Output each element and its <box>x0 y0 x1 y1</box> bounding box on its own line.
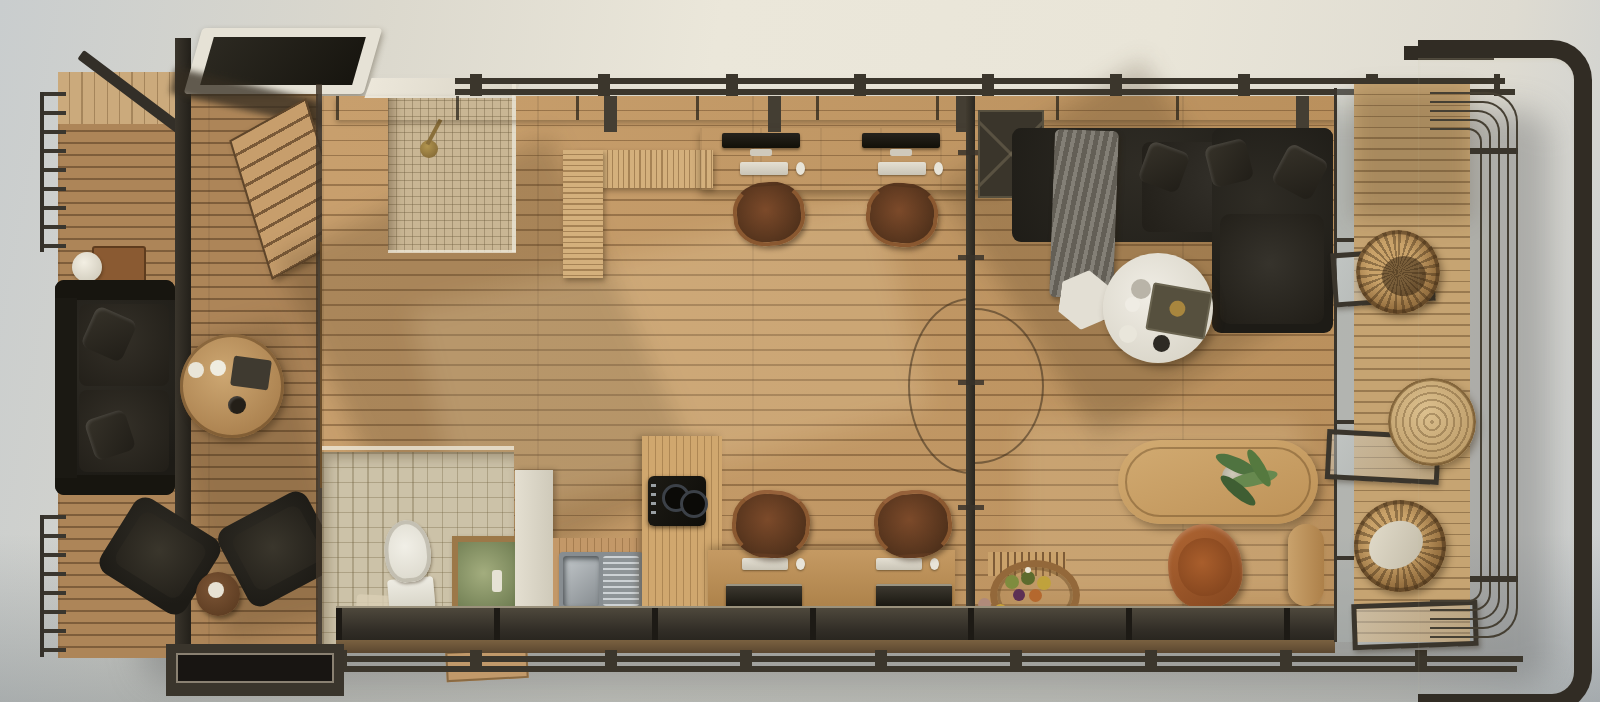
bath-glass-north <box>322 446 514 450</box>
stool-candle <box>208 582 224 598</box>
skylight-glass <box>200 37 366 85</box>
table-book <box>230 356 272 391</box>
rafter-tie <box>1296 96 1309 132</box>
monitor <box>726 584 802 608</box>
armchair-cushion <box>229 503 325 593</box>
sectional-chaise-cushion <box>1220 214 1324 324</box>
glass-wall-bar <box>1334 238 1354 242</box>
glass-divider <box>966 96 975 642</box>
tray-gold-dish <box>1168 299 1187 318</box>
flower <box>1025 567 1031 573</box>
north-window-band <box>336 96 1335 120</box>
rafter-tie <box>604 96 617 132</box>
cooktop <box>648 476 706 526</box>
fruit <box>1013 589 1025 601</box>
keyboard <box>742 558 788 570</box>
side-table <box>180 334 284 438</box>
keyboard <box>876 558 922 570</box>
side-mug <box>188 362 204 378</box>
mouse <box>930 558 939 570</box>
l-counter-side <box>563 150 603 278</box>
left-deck-sofa <box>55 280 175 495</box>
railing-left-bottom <box>40 515 66 657</box>
monitor <box>876 584 952 608</box>
keyboard <box>878 162 926 175</box>
table-tray-book <box>1145 282 1212 340</box>
table-plate <box>1119 325 1137 343</box>
floor-plan-render <box>0 0 1600 702</box>
sofa-arm-top <box>55 280 175 300</box>
office-chair-south-1 <box>730 488 811 560</box>
toilet <box>380 518 440 618</box>
sphere-lamp <box>72 252 102 282</box>
bench <box>1288 524 1324 606</box>
monitor-stand <box>890 149 912 156</box>
mouse <box>934 162 943 175</box>
burner <box>680 490 708 518</box>
monitor-stand <box>750 149 772 156</box>
sink-basin <box>563 556 599 606</box>
shower-glass-south <box>388 250 516 253</box>
kitchen-sink <box>559 552 643 610</box>
railing-left-top <box>40 92 66 252</box>
monitor <box>862 133 940 148</box>
table-cup <box>210 360 226 376</box>
divider-rung <box>958 505 984 510</box>
mouse <box>796 162 805 175</box>
vanity-faucet <box>492 570 502 592</box>
mouse <box>796 558 805 570</box>
keyboard <box>740 162 788 175</box>
table-cup <box>1125 297 1140 312</box>
table-bowl <box>228 396 246 414</box>
platform-panel <box>176 653 334 683</box>
cooktop-dials <box>651 484 656 518</box>
monitor <box>722 133 800 148</box>
fruit <box>1029 589 1042 602</box>
glass-wall-bar <box>1334 420 1354 424</box>
divider-rung <box>958 380 984 385</box>
coffee-table <box>1103 253 1213 363</box>
entry-platform <box>166 644 344 696</box>
base-rail-ties <box>200 650 1490 672</box>
frame-right <box>1418 40 1592 702</box>
table-dark-cup <box>1153 335 1170 352</box>
toilet-bowl <box>382 518 433 584</box>
sofa-back <box>55 298 77 478</box>
fruit <box>1037 576 1051 590</box>
south-window-band <box>336 606 1335 644</box>
rafter-tie <box>768 96 781 132</box>
deck-stool <box>196 572 240 616</box>
divider-rung <box>958 255 984 260</box>
sink-drainboard <box>603 556 639 606</box>
fruit <box>1005 575 1019 589</box>
fridge-cabinet <box>515 470 553 618</box>
fruit <box>1021 571 1035 585</box>
glass-wall-bar <box>1334 556 1354 560</box>
lounge-chair-seat <box>1175 535 1235 598</box>
table-jug <box>1131 279 1151 299</box>
sofa-arm-bottom <box>55 475 175 495</box>
